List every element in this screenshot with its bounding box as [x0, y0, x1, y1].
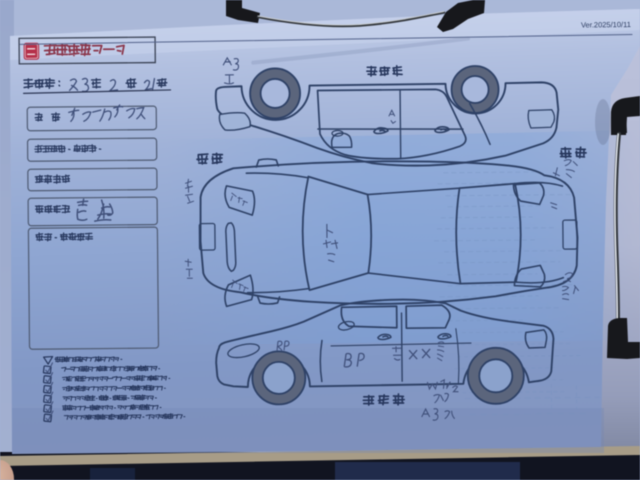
svg-text:Ver.2025/10/11: Ver.2025/10/11: [581, 20, 631, 29]
